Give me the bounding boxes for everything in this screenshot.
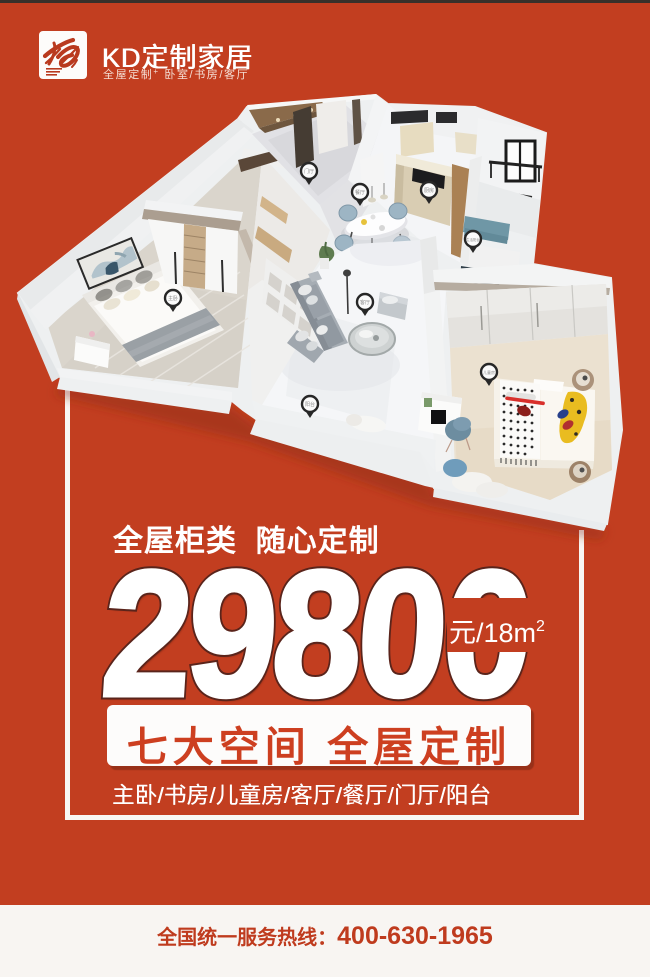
svg-text:生活阳台: 生活阳台 <box>466 237 480 242</box>
svg-text:阳台: 阳台 <box>305 401 315 408</box>
svg-text:餐厅: 餐厅 <box>355 189 365 196</box>
svg-text:厨房: 厨房 <box>424 187 434 194</box>
svg-text:儿童房: 儿童房 <box>483 369 495 375</box>
svg-text:客厅: 客厅 <box>360 299 370 306</box>
svg-text:主卧: 主卧 <box>168 295 178 302</box>
svg-text:门厅: 门厅 <box>304 168 314 175</box>
